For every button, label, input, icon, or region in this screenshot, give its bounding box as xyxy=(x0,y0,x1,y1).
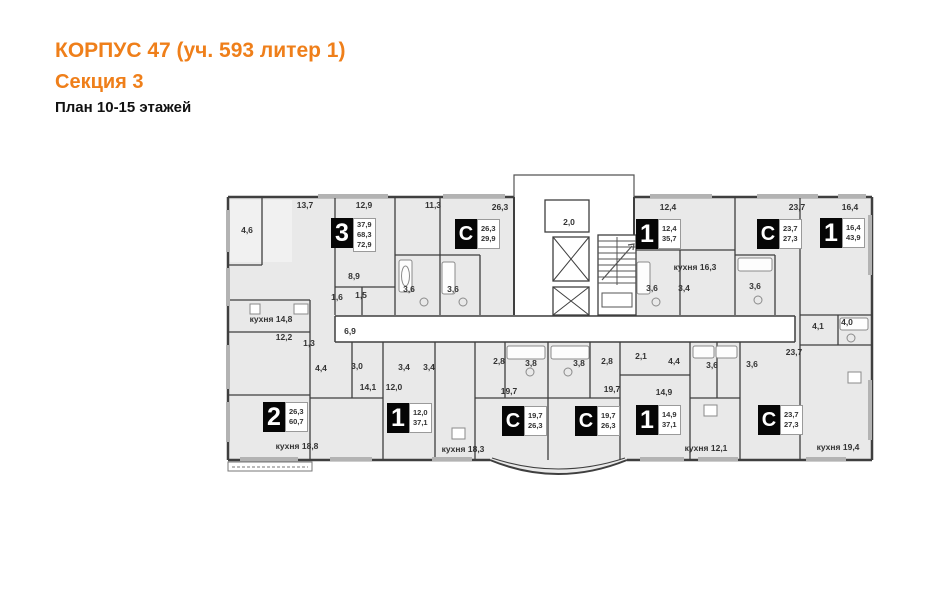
apartment-type: С xyxy=(757,219,779,249)
apartment-area-value: 60,7 xyxy=(289,417,304,427)
apartment-areas: 14,9 37,1 xyxy=(658,405,681,435)
apartment-type: С xyxy=(758,405,780,435)
apartment-area-value: 19,7 xyxy=(601,411,616,421)
apartment-type: 3 xyxy=(331,218,353,248)
apartment-badge-studio: С 23,7 27,3 xyxy=(757,219,802,249)
room-area-label: 12,2 xyxy=(276,332,293,342)
room-area-label: кухня 18,3 xyxy=(442,444,485,454)
room-area-label: 1,5 xyxy=(355,290,367,300)
room-area-label: 3,4 xyxy=(423,362,435,372)
apartment-area-value: 23,7 xyxy=(784,410,799,420)
room-area-label: 2,1 xyxy=(635,351,647,361)
apartment-type: 2 xyxy=(263,402,285,432)
room-area-label: 14,1 xyxy=(360,382,377,392)
apartment-badge-1room: 1 12,0 37,1 xyxy=(387,403,432,433)
room-area-label: 23,7 xyxy=(789,202,806,212)
room-area-label: 3,0 xyxy=(351,361,363,371)
apartment-badge-studio: С 23,7 27,3 xyxy=(758,405,803,435)
room-area-label: 3,8 xyxy=(525,358,537,368)
apartment-badge-1room: 1 12,4 35,7 xyxy=(636,219,681,249)
room-area-label: 1,6 xyxy=(331,292,343,302)
room-area-label: 3,6 xyxy=(749,281,761,291)
apartment-area-value: 26,3 xyxy=(289,407,304,417)
apartment-area-value: 12,0 xyxy=(413,408,428,418)
room-area-label: 19,7 xyxy=(604,384,621,394)
apartment-area-value: 27,3 xyxy=(783,234,798,244)
floor-plan: 4,6 13,7 12,9 11,3 26,3 2,0 12,4 23,7 16… xyxy=(0,0,941,600)
room-area-label: 3,8 xyxy=(573,358,585,368)
apartment-area-value: 43,9 xyxy=(846,233,861,243)
apartment-area-value: 12,4 xyxy=(662,224,677,234)
room-area-label: кухня 19,4 xyxy=(817,442,860,452)
room-area-label: 3,4 xyxy=(678,283,690,293)
room-area-label: 2,8 xyxy=(601,356,613,366)
staircase xyxy=(598,235,636,315)
apartment-badge-studio: С 19,7 26,3 xyxy=(502,406,547,436)
room-area-label: 4,6 xyxy=(241,225,253,235)
apartment-area-value: 37,1 xyxy=(662,420,677,430)
apartment-area-value: 26,3 xyxy=(601,421,616,431)
apartment-type: С xyxy=(455,219,477,249)
room-area-label: 12,9 xyxy=(356,200,373,210)
apartment-badge-studio: С 19,7 26,3 xyxy=(575,406,620,436)
room-area-label: 2,0 xyxy=(563,217,575,227)
room-area-label: 3,4 xyxy=(398,362,410,372)
room-area-label: кухня 14,8 xyxy=(250,314,293,324)
apartment-area-value: 37,9 xyxy=(357,220,372,230)
apartment-type: С xyxy=(502,406,524,436)
apartment-areas: 26,3 29,9 xyxy=(477,219,500,249)
apartment-area-value: 37,1 xyxy=(413,418,428,428)
floorplan-page: КОРПУС 47 (уч. 593 литер 1) Секция 3 Пла… xyxy=(0,0,941,600)
apartment-type: 1 xyxy=(387,403,409,433)
room-area-label: 3,6 xyxy=(646,283,658,293)
apartment-badge-1room: 1 16,4 43,9 xyxy=(820,218,865,248)
apartment-type: С xyxy=(575,406,597,436)
apartment-area-value: 29,9 xyxy=(481,234,496,244)
apartment-badge-studio: С 26,3 29,9 xyxy=(455,219,500,249)
room-area-label: 2,8 xyxy=(493,356,505,366)
room-area-label: 16,4 xyxy=(842,202,859,212)
room-area-label: 3,6 xyxy=(746,359,758,369)
apartment-area-value: 35,7 xyxy=(662,234,677,244)
room-area-label: 19,7 xyxy=(501,386,518,396)
apartment-type: 1 xyxy=(636,405,658,435)
room-area-label: кухня 16,3 xyxy=(674,262,717,272)
room-area-label: 4,4 xyxy=(315,363,327,373)
apartment-area-value: 16,4 xyxy=(846,223,861,233)
room-area-label: 26,3 xyxy=(492,202,509,212)
apartment-areas: 16,4 43,9 xyxy=(842,218,865,248)
apartment-area-value: 26,3 xyxy=(528,421,543,431)
apartment-type: 1 xyxy=(636,219,658,249)
room-area-label: 4,4 xyxy=(668,356,680,366)
room-area-label: 14,9 xyxy=(656,387,673,397)
room-area-label: 12,0 xyxy=(386,382,403,392)
room-area-label: 6,9 xyxy=(344,326,356,336)
room-area-label: 3,6 xyxy=(447,284,459,294)
apartment-area-value: 14,9 xyxy=(662,410,677,420)
apartment-areas: 23,7 27,3 xyxy=(779,219,802,249)
apartment-badge-1room: 1 14,9 37,1 xyxy=(636,405,681,435)
apartment-badge-2room: 2 26,3 60,7 xyxy=(263,402,308,432)
apartment-areas: 19,7 26,3 xyxy=(524,406,547,436)
apartment-badge-3room: 3 37,9 68,3 72,9 xyxy=(331,218,376,252)
room-area-label: 4,1 xyxy=(812,321,824,331)
room-area-label: кухня 12,1 xyxy=(685,443,728,453)
apartment-area-value: 23,7 xyxy=(783,224,798,234)
apartment-areas: 12,4 35,7 xyxy=(658,219,681,249)
room-area-label: 3,6 xyxy=(403,284,415,294)
apartment-area-value: 27,3 xyxy=(784,420,799,430)
apartment-type: 1 xyxy=(820,218,842,248)
apartment-area-value: 68,3 xyxy=(357,230,372,240)
apartment-areas: 23,7 27,3 xyxy=(780,405,803,435)
apartment-area-value: 19,7 xyxy=(528,411,543,421)
apartment-areas: 37,9 68,3 72,9 xyxy=(353,218,376,252)
floor-plan-drawing xyxy=(0,0,941,600)
room-area-label: 4,0 xyxy=(841,317,853,327)
balcony-strip xyxy=(228,462,312,471)
room-area-label: 1,3 xyxy=(303,338,315,348)
apartment-areas: 26,3 60,7 xyxy=(285,402,308,432)
apartment-areas: 19,7 26,3 xyxy=(597,406,620,436)
room-area-label: 13,7 xyxy=(297,200,314,210)
room-area-label: 12,4 xyxy=(660,202,677,212)
apartment-area-value: 26,3 xyxy=(481,224,496,234)
room-area-label: кухня 18,8 xyxy=(276,441,319,451)
apartment-areas: 12,0 37,1 xyxy=(409,403,432,433)
room-area-label: 3,6 xyxy=(706,360,718,370)
room-area-label: 11,3 xyxy=(425,200,441,210)
room-area-label: 23,7 xyxy=(786,347,803,357)
core-parapet xyxy=(514,175,634,197)
room-area-label: 8,9 xyxy=(348,271,360,281)
apartment-area-value: 72,9 xyxy=(357,240,372,250)
